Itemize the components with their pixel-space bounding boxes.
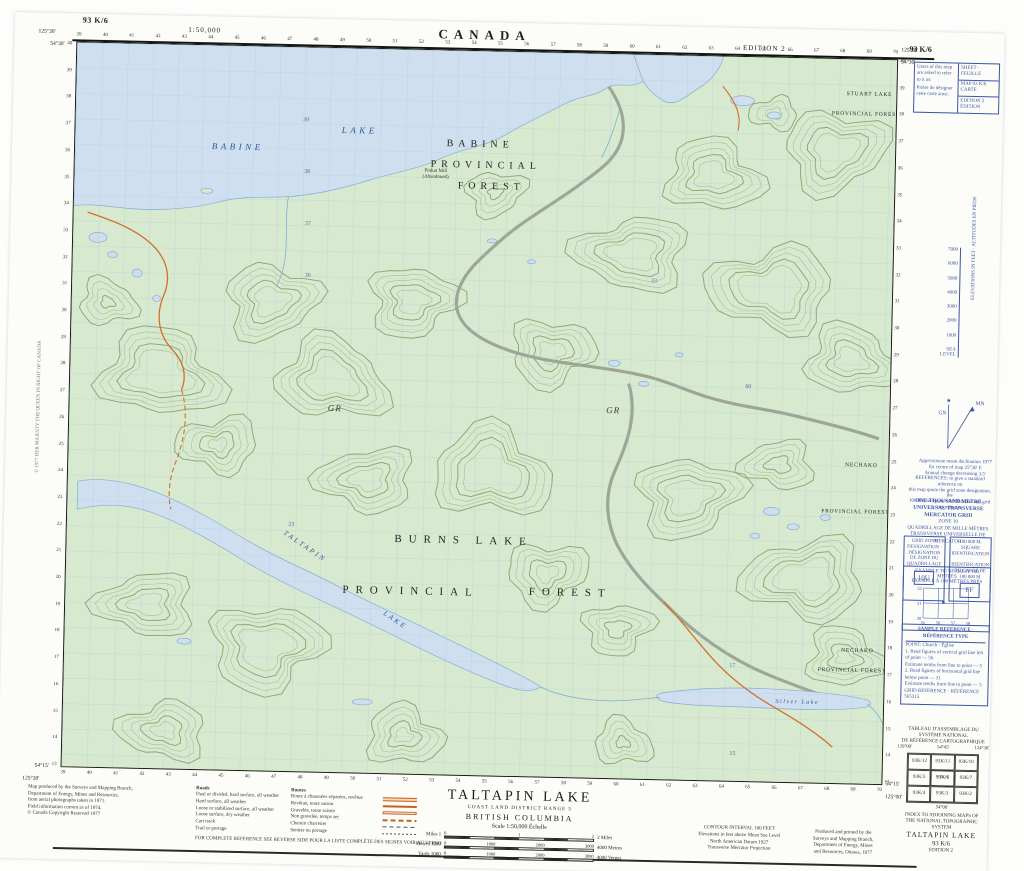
grid-edge-number: 18 <box>47 628 59 633</box>
grid-edge-number: 49 <box>324 776 329 781</box>
grid-edge-number: 64 <box>735 47 740 52</box>
magnetic-north-label: MN <box>976 401 985 407</box>
grid-number-interior: 36 <box>305 273 311 279</box>
grid-edge-number: 58 <box>561 781 566 786</box>
grid-edge-number: 52 <box>419 40 424 45</box>
grid-edge-number: 14 <box>45 735 57 740</box>
grid-edge-number: 40 <box>900 59 912 64</box>
utm-grid-overlay <box>62 42 898 784</box>
index-corner-tr: 124°30' <box>974 746 989 752</box>
index-cell: 93K/11 <box>931 754 955 771</box>
grid-edge-number: 48 <box>297 775 302 780</box>
grid-edge-number: 28 <box>893 380 905 385</box>
grid-edge-number: 67 <box>814 48 819 53</box>
corner-ne-longitude: 125°00' <box>901 47 918 53</box>
grid-number-interior: 37 <box>305 221 311 227</box>
index-cell: 93K/7 <box>954 770 978 787</box>
map-label: (Abandoned) <box>422 175 449 181</box>
grid-edge-number: 16 <box>46 682 58 687</box>
index-cell: 93K/4 <box>907 785 931 802</box>
contour-interval-note: CONTOUR INTERVAL 100 FEETElevations in f… <box>685 825 794 854</box>
grid-edge-number: 41 <box>129 33 134 38</box>
map-label: GR <box>606 405 620 415</box>
elevation-tick: SEA LEVEL <box>930 347 956 358</box>
grid-edge-number: 23 <box>50 495 62 500</box>
grid-edge-number: 56 <box>524 42 529 47</box>
grid-edge-number: 37 <box>898 139 910 144</box>
grid-edge-number: 63 <box>709 46 714 51</box>
text-line: 1. Read figures of vertical grid line le… <box>905 649 985 664</box>
grid-edge-number: 50 <box>366 39 371 44</box>
grid-edge-number: 59 <box>587 782 592 787</box>
grid-edge-number: 46 <box>261 36 266 41</box>
grid-edge-number: 17 <box>47 655 59 660</box>
grid-edge-number: 38 <box>899 113 911 118</box>
grid-edge-number: 56 <box>508 780 513 785</box>
map-area[interactable]: BABINELAKEBABINEPROVINCIALFORESTSTUART L… <box>61 41 899 785</box>
index-cell: 93K/12 <box>908 753 932 770</box>
grid-edge-number: 62 <box>682 46 687 51</box>
grid-edge-number: 37 <box>59 121 71 126</box>
grid-edge-number: 69 <box>867 50 872 55</box>
grid-edge-number: 19 <box>888 620 900 625</box>
grid-edge-number: 16 <box>886 700 898 705</box>
grid-edge-number: 60 <box>630 44 635 49</box>
grid-edge-number: 34 <box>57 201 69 206</box>
grid-edge-number: 66 <box>771 786 776 791</box>
printing-note: Produced and printed by theSurveys and M… <box>797 829 890 857</box>
grid-edge-number: 70 <box>893 50 898 55</box>
grid-edge-number: 51 <box>393 39 398 44</box>
grid-edge-number: 65 <box>761 47 766 52</box>
scale-bars: Miles 10122 MilesMetres 1000010002000300… <box>379 830 660 864</box>
grid-number-interior: 38 <box>304 169 310 175</box>
grid-edge-number: 38 <box>59 94 71 99</box>
grid-edge-number: 52 <box>403 778 408 783</box>
grid-edge-number: 53 <box>445 40 450 45</box>
grid-edge-number: 33 <box>896 246 908 251</box>
grid-edge-number: 20 <box>49 575 61 580</box>
grid-edge-number: 47 <box>287 37 292 42</box>
legend-head-routes: Routes <box>291 788 306 793</box>
grid-edge-number: 54 <box>472 41 477 46</box>
grid-edge-number: 69 <box>850 787 855 792</box>
topographic-map-canvas[interactable]: BABINELAKEBABINEPROVINCIALFORESTSTUART L… <box>62 42 898 784</box>
reference-note-en: Users of this map are asked to refer to … <box>917 65 956 85</box>
left-margin-vertical-note: © 1977 HER MAJESTY THE QUEEN IN RIGHT OF… <box>35 340 43 472</box>
sample-reference-lines: POINT: Church · Église1. Read figures of… <box>904 643 985 703</box>
grid-edge-number: 26 <box>892 433 904 438</box>
grid-edge-number: 13 <box>45 762 57 767</box>
grid-edge-number: 31 <box>895 300 907 305</box>
grid-edge-number: 24 <box>891 486 903 491</box>
grid-north-label: GN <box>938 410 946 416</box>
grid-edge-number: 61 <box>640 783 645 788</box>
grid-edge-number: 46 <box>245 774 250 779</box>
grid-edge-number: 31 <box>55 281 67 286</box>
index-cell: 93K/2 <box>954 786 978 803</box>
grid-edge-number: 51 <box>376 777 381 782</box>
grid-edge-number: 14 <box>885 753 897 758</box>
grid-edge-number: 39 <box>899 86 911 91</box>
grid-edge-number: 48 <box>313 38 318 43</box>
grid-edge-number: 45 <box>218 774 223 779</box>
grid-edge-number: 19 <box>48 602 60 607</box>
elevation-tick: 1000 <box>930 333 956 339</box>
elevation-tick: 3000 <box>931 304 957 310</box>
reference-box: Users of this map are asked to refer to … <box>913 62 1000 114</box>
grid-edge-number: 40 <box>60 41 72 46</box>
grid-edge-number: 57 <box>534 781 539 786</box>
reference-row: SHEET · FEUILLE <box>959 64 999 81</box>
map-label: Silver Lake <box>776 699 820 706</box>
reference-row: EDITION 2 ÉDITION <box>958 97 998 113</box>
sheet-edition: EDITION 2 <box>893 847 989 854</box>
grid-edge-number: 59 <box>603 44 608 49</box>
grid-edge-number: 42 <box>139 772 144 777</box>
text-line: GRID REFERENCE · RÉFÉRENCE 565315 <box>904 688 984 703</box>
grid-edge-number: 29 <box>894 353 906 358</box>
grid-edge-number: 49 <box>340 38 345 43</box>
index-cell: 93K/10 <box>954 754 978 771</box>
grid-edge-number: 65 <box>745 785 750 790</box>
elevation-scale-caption: ELEVATIONS IN FEET · ALTITUDES EN PIEDS <box>971 196 978 300</box>
grid-edge-number: 17 <box>887 673 899 678</box>
grid-number-interior: 23 <box>288 522 294 528</box>
grid-edge-number: 21 <box>889 567 901 572</box>
grid-edge-number: 36 <box>898 166 910 171</box>
sheet-number-top-left: 93 K/6 <box>83 15 109 25</box>
corner-sw-longitude: 125°30' <box>22 775 39 781</box>
reference-note-fr: Prière de désigner cette carte ainsi: <box>916 85 955 98</box>
grid-edge-number: 44 <box>208 35 213 40</box>
grid-edge-number: 61 <box>656 45 661 50</box>
grid-edge-number: 30 <box>894 326 906 331</box>
map-label: GR <box>328 403 342 413</box>
true-north-star: ★ <box>946 397 952 404</box>
grid-edge-number: 41 <box>113 771 118 776</box>
grid-edge-number: 35 <box>897 193 909 198</box>
production-credits: Map produced by the Surveys and Mapping … <box>27 784 193 820</box>
index-cell: 93K/3 <box>930 786 954 803</box>
grid-edge-number: 18 <box>887 647 899 652</box>
index-grid: 93K/1293K/1193K/1093K/593K/693K/793K/493… <box>906 752 979 804</box>
grid-edge-number: 34 <box>897 220 909 225</box>
grid-edge-number: 36 <box>58 148 70 153</box>
grid-edge-number: 66 <box>788 48 793 53</box>
svg-text:32: 32 <box>917 586 922 591</box>
map-label: NECHAKO <box>845 462 877 469</box>
elevation-tick: 6000 <box>932 261 958 267</box>
index-cell-current-sheet: 93K/6 <box>931 770 955 787</box>
grid-edge-number: 21 <box>49 548 61 553</box>
grid-edge-number: 13 <box>884 780 896 785</box>
grid-edge-number: 45 <box>234 36 239 41</box>
map-label: BABINE <box>212 141 264 152</box>
map-sheet: 93 K/6 1:50,000 CANADA EDITION 2 93 K/6 … <box>0 12 1005 871</box>
grid-edge-number: 27 <box>892 406 904 411</box>
grid-edge-number: 23 <box>890 513 902 518</box>
grid-edge-number: 39 <box>60 770 65 775</box>
elevation-tick: 4000 <box>931 290 957 296</box>
example-mini-grid: 55565758323130 <box>915 586 978 627</box>
grid-edge-number: 63 <box>692 784 697 789</box>
map-label: BABINE <box>447 138 514 150</box>
grid-edge-number: 58 <box>577 43 582 48</box>
grid-edge-number: 47 <box>271 775 276 780</box>
map-label: Pinkut Mill <box>424 169 448 175</box>
grid-edge-number: 50 <box>350 776 355 781</box>
grid-edge-number: 20 <box>888 593 900 598</box>
svg-text:31: 31 <box>917 601 922 606</box>
grid-edge-number: 35 <box>57 174 69 179</box>
grid-edge-number: 25 <box>52 441 64 446</box>
elevation-tick: 2000 <box>930 318 956 324</box>
text-line: and Resources, Ottawa, 1977 <box>797 849 889 858</box>
sample-reference-box: SAMPLE REFERENCE · RÉFÉRENCE TYPE POINT:… <box>900 623 990 705</box>
grid-edge-number: 62 <box>666 783 671 788</box>
grid-edge-number: 43 <box>166 772 171 777</box>
grid-edge-number: 24 <box>51 468 63 473</box>
map-label: FOREST <box>458 180 525 192</box>
elevation-tick: 7000 <box>932 247 958 253</box>
grid-edge-number: 32 <box>56 255 68 260</box>
grid-edge-number: 64 <box>719 785 724 790</box>
grid-edge-number: 44 <box>192 773 197 778</box>
grid-edge-number: 29 <box>54 335 66 340</box>
grid-number-interior: 60 <box>745 384 751 390</box>
grid-edge-number: 15 <box>46 708 58 713</box>
grid-edge-number: 22 <box>890 540 902 545</box>
map-label: LAKE <box>341 125 378 136</box>
reference-row: MAP 93 K/6 CARTE <box>958 80 998 97</box>
grid-edge-number: 42 <box>155 34 160 39</box>
grid-edge-number: 28 <box>53 361 65 366</box>
sheet-identification: TALTAPIN LAKE 93 K/6 EDITION 2 <box>893 829 989 854</box>
map-label: FOREST <box>529 586 612 600</box>
index-cell: 93K/5 <box>907 769 931 786</box>
map-label: STUART LAKE <box>847 91 893 98</box>
grid-edge-number: 60 <box>613 782 618 787</box>
grid-edge-number: 43 <box>182 35 187 40</box>
grid-edge-number: 54 <box>455 779 460 784</box>
declination-arrows: ★ GN MN <box>918 394 995 458</box>
grid-example-box: EXAMPLE TO NEAREST 100 METRES EXEMPLE À … <box>902 566 991 633</box>
title-block: TALTAPIN LAKE COAST LAND DISTRICT RANGE … <box>379 786 660 863</box>
grid-edge-number: 55 <box>482 779 487 784</box>
elevation-tick: 5000 <box>931 276 957 282</box>
grid-edge-number: 15 <box>886 727 898 732</box>
map-label: NECHAKO <box>841 648 873 655</box>
grid-number-interior: 17 <box>729 663 735 669</box>
grid-edge-number: 30 <box>54 308 66 313</box>
grid-edge-number: 25 <box>891 460 903 465</box>
adjoining-maps-index: TABLEAU D'ASSEMBLAGE DU SYSTÈME NATIONAL… <box>895 726 989 831</box>
declination-diagram: ★ GN MN Approximate mean declination 197… <box>917 394 995 479</box>
grid-edge-number: 27 <box>53 388 65 393</box>
grid-edge-number: 57 <box>551 43 556 48</box>
grid-edge-number: 22 <box>50 522 62 527</box>
grid-edge-number: 32 <box>895 273 907 278</box>
grid-edge-number: 68 <box>824 787 829 792</box>
grid-edge-number: 33 <box>56 228 68 233</box>
grid-edge-number: 70 <box>877 788 882 793</box>
grid-number-interior: 15 <box>729 751 735 757</box>
grid-edge-number: 40 <box>87 771 92 776</box>
grid-number-interior: 39 <box>303 117 309 123</box>
grid-edge-number: 67 <box>798 786 803 791</box>
grid-edge-number: 39 <box>60 68 72 73</box>
corner-nw-longitude: 125°30' <box>39 29 56 35</box>
grid-edge-number: 53 <box>429 778 434 783</box>
grid-number-interior: 33 <box>651 278 657 284</box>
index-corner-tl: 126°00' <box>897 744 912 750</box>
grid-edge-number: 55 <box>498 42 503 47</box>
grid-edge-number: 40 <box>103 33 108 38</box>
grid-edge-number: 39 <box>76 32 81 37</box>
grid-edge-number: 68 <box>840 49 845 54</box>
elevation-scale: 7000600050004000300020001000SEA LEVEL EL… <box>929 247 992 368</box>
grid-edge-number: 26 <box>52 415 64 420</box>
text-line: Transverse Mercator Projection <box>685 845 793 854</box>
scanned-map-page: 93 K/6 1:50,000 CANADA EDITION 2 93 K/6 … <box>0 0 1024 871</box>
